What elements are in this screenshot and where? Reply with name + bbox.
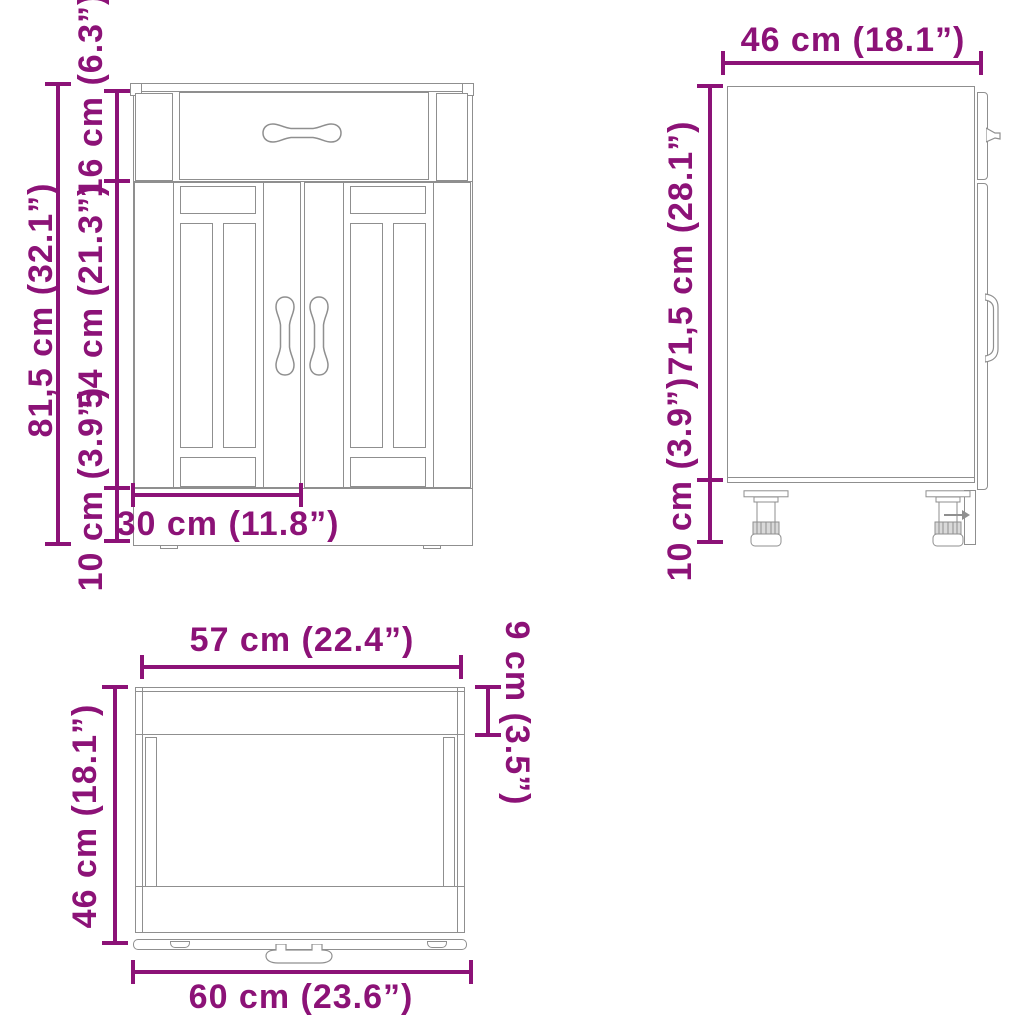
dim-tick	[140, 655, 144, 679]
dim-line-plan-depth	[113, 687, 117, 945]
dim-label-front-width: 57 cm (22.4”)	[190, 623, 415, 657]
dim-label-plan-depth: 46 cm (18.1”)	[68, 704, 102, 929]
dim-tick	[102, 941, 128, 945]
plan-overhang-line	[136, 734, 464, 735]
dim-label-total-width: 60 cm (23.6”)	[189, 980, 414, 1014]
dim-tick	[102, 685, 128, 689]
plan-handle	[264, 944, 334, 964]
plan-inner-left-line	[142, 688, 143, 932]
plan-side-wall-right	[443, 737, 455, 887]
plan-front-frame-line	[136, 886, 464, 887]
plan-hinge-notch	[427, 941, 447, 948]
dim-tick	[131, 960, 135, 984]
cabinet-dimension-diagram: 81,5 cm (32.1”) 16 cm (6.3”) 54 cm (21.3…	[0, 0, 1024, 1024]
plan-inner-right-line	[457, 688, 458, 932]
plan-inner-top-line	[136, 691, 464, 692]
plan-outline	[135, 687, 465, 933]
dim-line-front-width	[142, 665, 463, 669]
plan-side-wall-left	[145, 737, 157, 887]
dim-tick	[469, 960, 473, 984]
dim-label-top-depth: 9 cm (3.5”)	[500, 621, 534, 806]
dim-line-top-depth	[486, 687, 490, 737]
top-view: 57 cm (22.4”) 9 cm (3.5”) 46 cm (18.1”) …	[0, 0, 1024, 1024]
dim-tick	[459, 655, 463, 679]
plan-hinge-notch	[170, 941, 190, 948]
dim-line-total-width	[133, 970, 473, 974]
